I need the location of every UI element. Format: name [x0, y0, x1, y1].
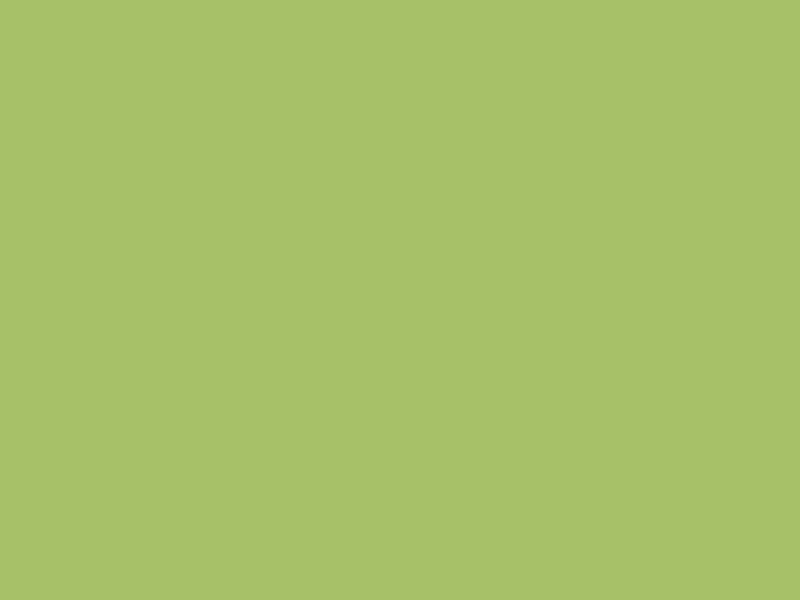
render-viewport: [0, 0, 800, 600]
park-aerial-render: [0, 0, 800, 600]
